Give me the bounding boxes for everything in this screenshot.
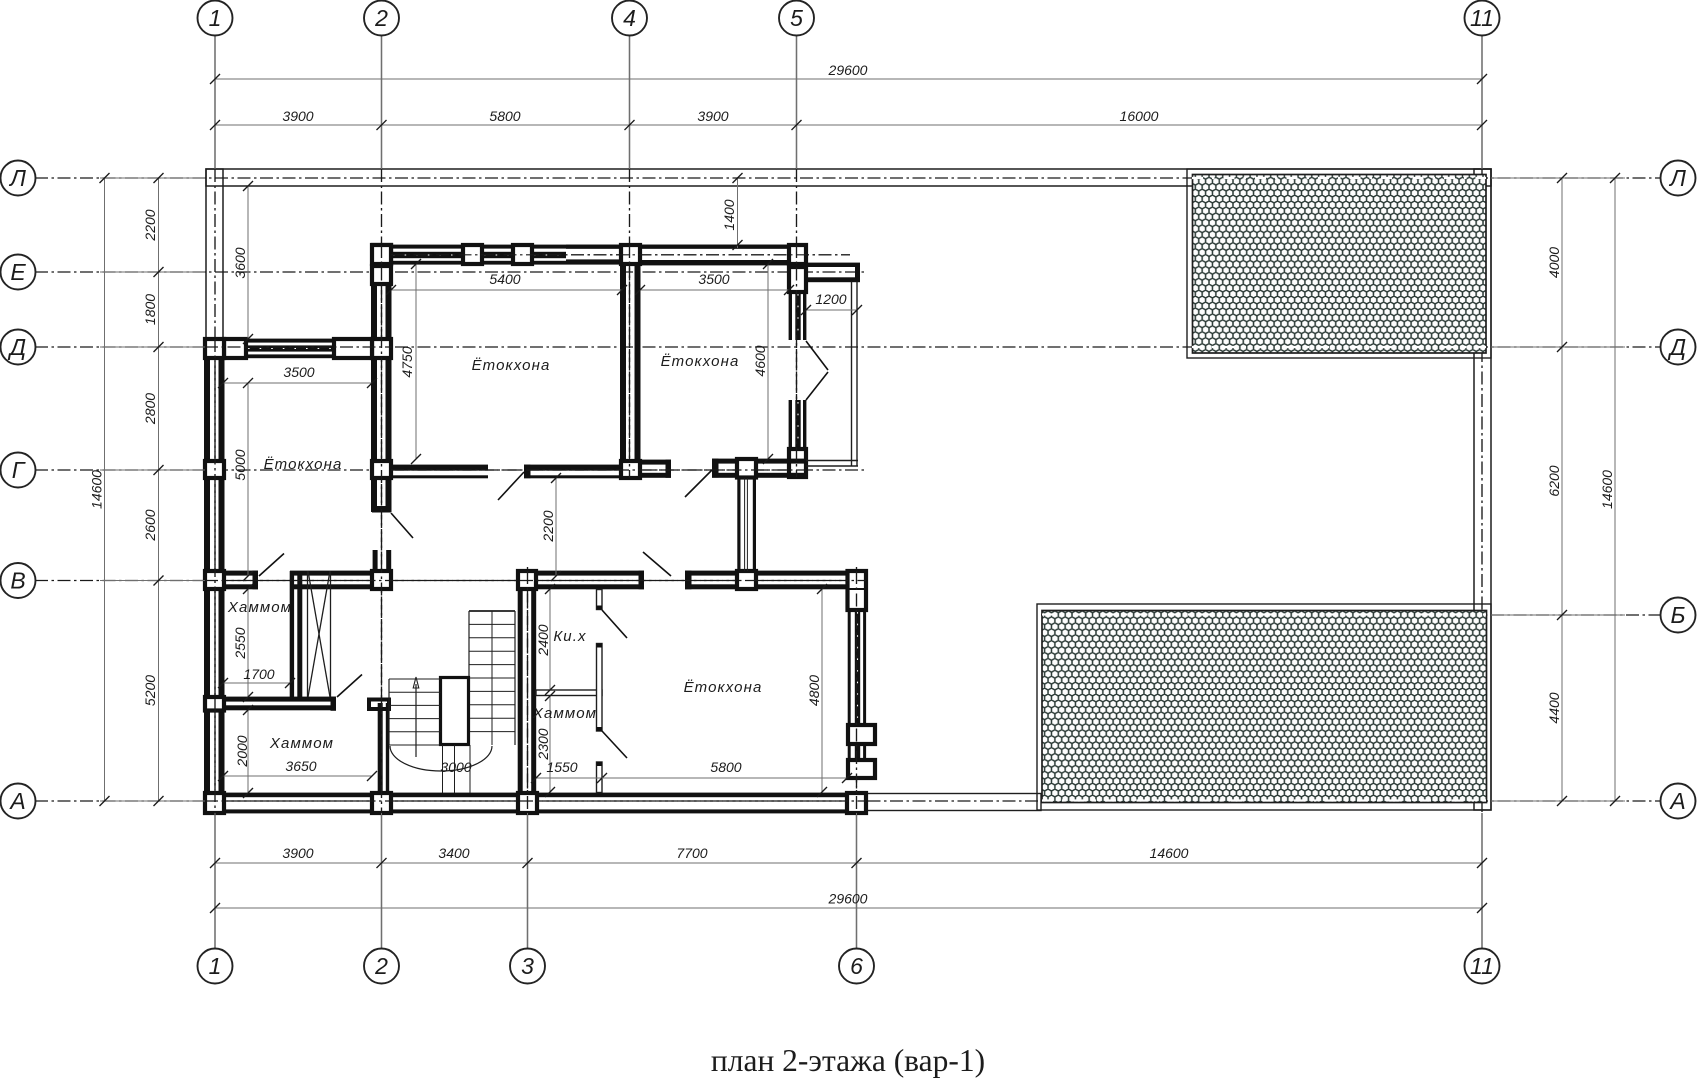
svg-text:2000: 2000	[234, 735, 250, 767]
svg-text:2: 2	[374, 953, 388, 979]
svg-text:Хаммом: Хаммом	[532, 705, 597, 722]
svg-text:Л: Л	[8, 165, 26, 191]
svg-text:В: В	[10, 568, 25, 594]
svg-text:Л: Л	[1668, 165, 1686, 191]
svg-text:Хаммом: Хаммом	[227, 599, 292, 616]
svg-text:Ётокхона: Ётокхона	[684, 679, 763, 696]
svg-text:4800: 4800	[806, 675, 822, 706]
svg-text:3500: 3500	[283, 364, 314, 380]
svg-text:3900: 3900	[282, 845, 313, 861]
svg-text:4750: 4750	[399, 346, 415, 377]
svg-text:Е: Е	[10, 259, 26, 285]
svg-text:2550: 2550	[232, 627, 248, 659]
svg-text:5800: 5800	[710, 759, 741, 775]
svg-text:А: А	[8, 788, 25, 814]
svg-text:2: 2	[374, 5, 388, 31]
svg-text:4000: 4000	[1546, 247, 1562, 278]
svg-text:29600: 29600	[828, 891, 868, 907]
svg-text:4400: 4400	[1546, 692, 1562, 723]
svg-text:6200: 6200	[1546, 465, 1562, 496]
svg-text:1400: 1400	[721, 199, 737, 230]
svg-text:5800: 5800	[489, 108, 520, 124]
svg-text:3900: 3900	[282, 108, 313, 124]
svg-text:3600: 3600	[232, 247, 248, 278]
svg-text:Д: Д	[7, 334, 26, 360]
svg-text:5000: 5000	[232, 449, 248, 480]
svg-text:14600: 14600	[89, 470, 105, 509]
svg-text:2400: 2400	[535, 624, 551, 656]
svg-text:1: 1	[209, 5, 222, 31]
svg-text:2600: 2600	[142, 509, 158, 541]
svg-text:1: 1	[209, 953, 222, 979]
svg-text:5400: 5400	[489, 271, 520, 287]
svg-text:Г: Г	[12, 457, 26, 483]
svg-text:14600: 14600	[1599, 470, 1615, 509]
svg-text:Б: Б	[1671, 602, 1686, 628]
svg-text:план 2-этажа (вар-1): план 2-этажа (вар-1)	[711, 1043, 985, 1078]
svg-text:2800: 2800	[142, 393, 158, 425]
svg-text:16000: 16000	[1120, 108, 1159, 124]
svg-text:11: 11	[1470, 5, 1494, 31]
svg-text:1700: 1700	[243, 666, 274, 682]
svg-text:Ётокхона: Ётокхона	[264, 456, 343, 473]
svg-text:3900: 3900	[697, 108, 728, 124]
svg-text:4: 4	[623, 5, 636, 31]
svg-text:14600: 14600	[1150, 845, 1189, 861]
svg-text:5200: 5200	[142, 675, 158, 706]
svg-text:3650: 3650	[285, 758, 316, 774]
svg-text:Ки.х: Ки.х	[553, 628, 586, 645]
svg-text:3: 3	[521, 953, 534, 979]
svg-text:2200: 2200	[142, 209, 158, 241]
svg-text:29600: 29600	[828, 62, 868, 78]
svg-text:6: 6	[850, 953, 863, 979]
svg-text:3400: 3400	[438, 845, 469, 861]
svg-text:1550: 1550	[546, 759, 577, 775]
svg-text:Д: Д	[1667, 334, 1686, 360]
svg-text:5: 5	[790, 5, 803, 31]
svg-text:7700: 7700	[676, 845, 707, 861]
svg-text:Ётокхона: Ётокхона	[472, 357, 551, 374]
svg-text:1200: 1200	[815, 291, 846, 307]
svg-text:2300: 2300	[535, 728, 551, 760]
svg-text:Хаммом: Хаммом	[269, 735, 334, 752]
svg-text:11: 11	[1470, 953, 1494, 979]
svg-text:А: А	[1668, 788, 1685, 814]
svg-text:3500: 3500	[698, 271, 729, 287]
svg-text:3000: 3000	[440, 759, 471, 775]
svg-text:1800: 1800	[142, 294, 158, 325]
svg-text:4600: 4600	[752, 345, 768, 376]
svg-text:2200: 2200	[540, 510, 556, 542]
svg-text:Ётокхона: Ётокхона	[661, 353, 740, 370]
